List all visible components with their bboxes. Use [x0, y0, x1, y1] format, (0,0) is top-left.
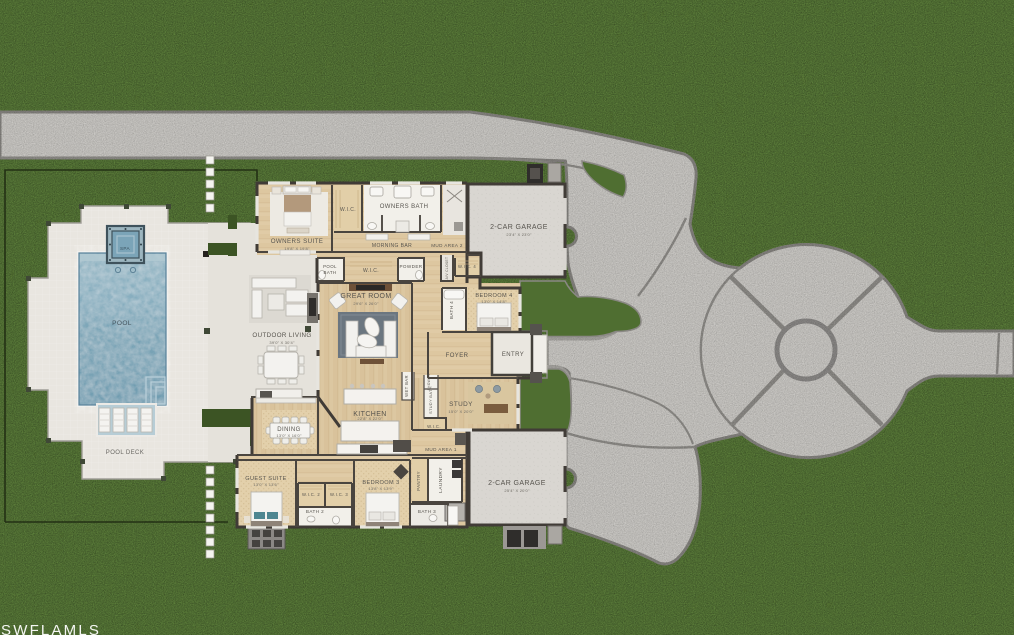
svg-text:W.I.C. 4: W.I.C. 4	[458, 264, 476, 269]
svg-text:BATH 3: BATH 3	[418, 509, 436, 514]
svg-text:BATH: BATH	[324, 270, 337, 275]
svg-text:15'0" X 20'0": 15'0" X 20'0"	[448, 409, 474, 414]
svg-text:POOL: POOL	[323, 264, 337, 269]
svg-text:19'8" X 19'8": 19'8" X 19'8"	[284, 246, 310, 251]
svg-text:W.I.C. 3: W.I.C. 3	[330, 492, 348, 497]
svg-text:ENTRY: ENTRY	[502, 352, 524, 358]
svg-text:13'8" X 13'9": 13'8" X 13'9"	[368, 486, 394, 491]
svg-text:23'4" X 23'0": 23'4" X 23'0"	[506, 232, 532, 237]
svg-text:BATH 2: BATH 2	[306, 509, 324, 514]
svg-text:13'0" X 16'0": 13'0" X 16'0"	[276, 433, 302, 438]
svg-text:39'0" X 30'4": 39'0" X 30'4"	[269, 340, 295, 345]
svg-text:MUD AREA 2: MUD AREA 2	[431, 243, 463, 248]
svg-text:POWDER: POWDER	[399, 264, 422, 269]
svg-text:29'6" X 26'0": 29'6" X 26'0"	[353, 301, 379, 306]
svg-text:LAUNDRY: LAUNDRY	[438, 467, 444, 493]
svg-text:STUDY BATH: STUDY BATH	[429, 386, 433, 414]
svg-text:BATH 4: BATH 4	[449, 301, 454, 319]
svg-text:13'0" X 14'8": 13'0" X 14'8"	[481, 299, 507, 304]
svg-text:W.I.C. 2: W.I.C. 2	[302, 492, 320, 497]
svg-text:OWNERS SUITE: OWNERS SUITE	[271, 238, 324, 245]
svg-text:2-CAR GARAGE: 2-CAR GARAGE	[488, 480, 546, 487]
svg-text:W.I.C.: W.I.C.	[363, 268, 379, 274]
svg-text:25'4" X 20'0": 25'4" X 20'0"	[504, 488, 530, 493]
svg-text:POOL DECK: POOL DECK	[106, 450, 144, 456]
svg-text:SPA: SPA	[120, 246, 131, 251]
svg-text:POOL: POOL	[112, 320, 132, 327]
svg-text:GREAT ROOM: GREAT ROOM	[340, 293, 391, 300]
svg-text:W.I.C.: W.I.C.	[427, 424, 441, 429]
svg-text:OWNERS BATH: OWNERS BATH	[380, 204, 429, 210]
svg-text:PANTRY: PANTRY	[416, 471, 421, 491]
svg-text:22'8" X 22'0": 22'8" X 22'0"	[357, 416, 383, 421]
svg-text:OUTDOOR LIVING: OUTDOOR LIVING	[252, 332, 311, 339]
svg-text:MUD AREA 1: MUD AREA 1	[425, 447, 457, 452]
svg-text:2-CAR GARAGE: 2-CAR GARAGE	[490, 224, 548, 231]
svg-text:MORNING BAR: MORNING BAR	[372, 243, 412, 249]
svg-text:STUDY: STUDY	[449, 401, 473, 408]
svg-text:W.I.C.: W.I.C.	[340, 207, 356, 213]
svg-text:13'0" X 13'6": 13'0" X 13'6"	[253, 482, 279, 487]
svg-text:SWFLAMLS: SWFLAMLS	[1, 622, 101, 635]
svg-text:A/V CLOSET: A/V CLOSET	[445, 257, 449, 280]
svg-text:WET BAR: WET BAR	[404, 375, 409, 397]
svg-text:FOYER: FOYER	[446, 353, 469, 359]
